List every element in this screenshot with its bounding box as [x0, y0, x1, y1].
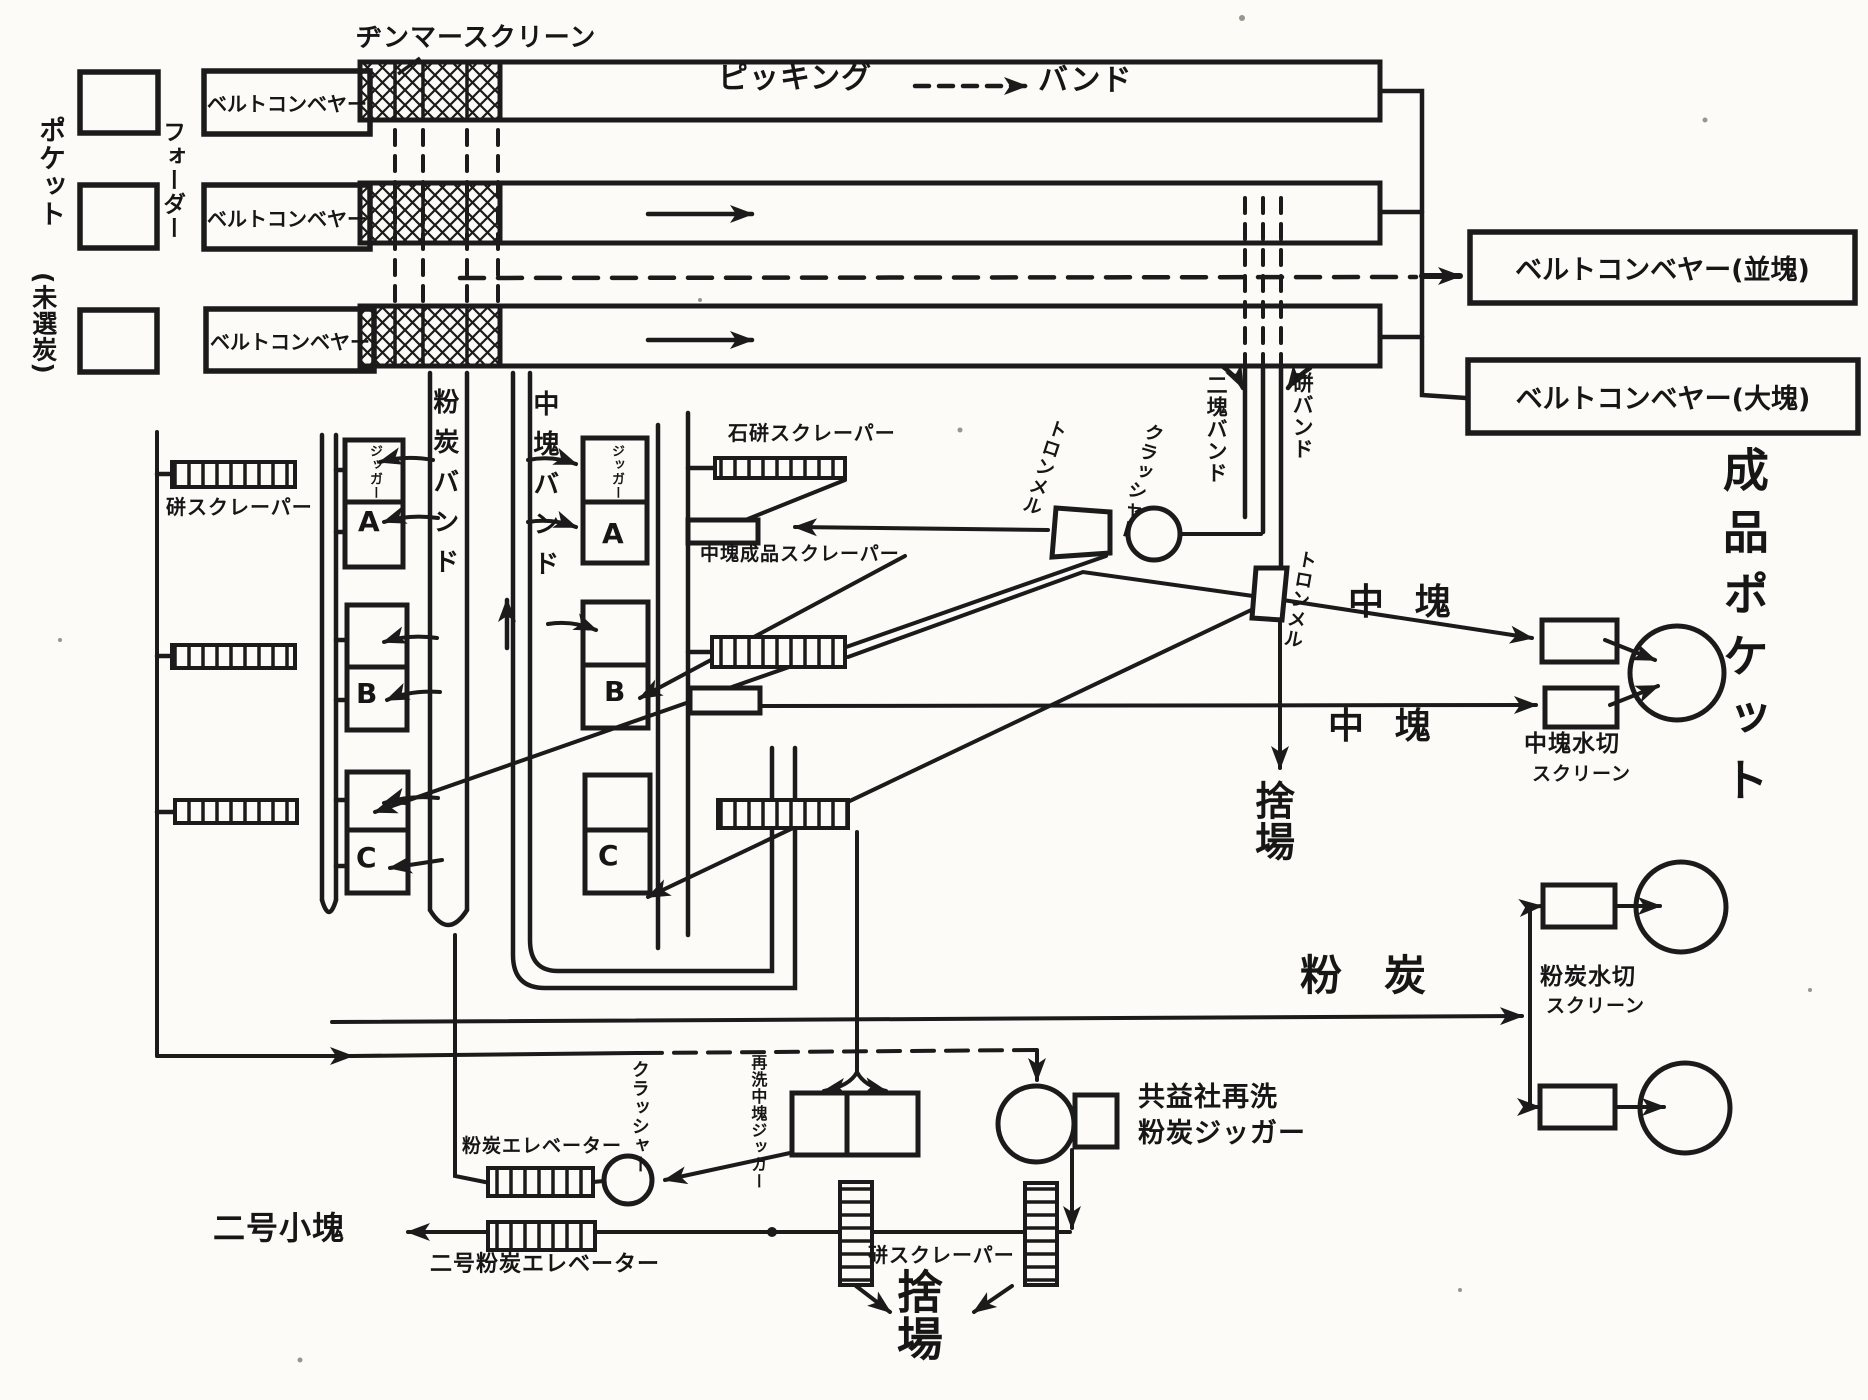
chukai-seihin-scraper-label: 中塊成品スクレーパー	[700, 544, 900, 566]
zuri-scraper-ladder-1	[172, 462, 295, 487]
jigger-left-label: ジッガー	[366, 444, 381, 500]
chukai-lower-label: 中塊	[1328, 706, 1461, 747]
lower-band-outline	[360, 306, 1380, 366]
zuri-scraper-ladder-3	[175, 800, 297, 823]
jimmer-screen-1	[360, 62, 500, 120]
conveyor-ogai-label: ベルトコンベヤー(大塊)	[1468, 360, 1858, 433]
funtan-band-label: 粉炭バンド	[428, 388, 458, 653]
raw-pocket-3	[80, 310, 157, 372]
jigger-right-label: ジッガー	[608, 444, 623, 500]
band-label: バンド	[1038, 64, 1133, 99]
chukai-upper-label: 中塊	[1348, 582, 1481, 623]
kyoekisha-jig-circle	[998, 1086, 1074, 1162]
chukai-band-label: 中塊バンド	[528, 390, 558, 660]
jigger-right-c-box	[585, 775, 650, 893]
rewash-jig-box	[792, 1093, 918, 1155]
jigger-left-a: A	[358, 506, 381, 538]
saisen-chukai-jigger-label: 再洗中塊ジッガー	[748, 1054, 766, 1189]
belt-conveyor-label-3: ベルトコンベヤー	[206, 309, 374, 371]
mid-band-outline	[360, 183, 1380, 243]
ishizuri-scraper-label: 石硑スクレーパー	[728, 422, 896, 445]
pocket-sub-label: (未選炭)	[28, 272, 57, 432]
dump-scraper-ladder-left	[840, 1182, 872, 1285]
chukai-seihin-scraper-ladder	[712, 637, 845, 667]
suteba-mid-label: 捨場	[1248, 780, 1294, 920]
chukai-mizukiri-label: 中塊水切	[1524, 731, 1620, 757]
collect-box-upper	[688, 520, 758, 543]
kyoekisha-label-2: 粉炭ジッガー	[1138, 1118, 1306, 1149]
seihin-pocket-label: 成品ポケット	[1716, 446, 1769, 956]
jimmer-screen-2	[360, 183, 500, 243]
jimmer-screen-3	[360, 306, 500, 366]
jigger-feed-arrows	[380, 458, 596, 803]
chukai-screen-box-2	[1545, 688, 1617, 727]
pocket-label: ポケット	[34, 116, 65, 286]
crusher-2-label: クラッシャー	[628, 1060, 649, 1170]
jigger-right-b: B	[604, 676, 626, 708]
nigo-kokai-label: 二号小塊	[213, 1210, 345, 1247]
chukai-mizukiri-screen-label: スクリーン	[1532, 764, 1631, 786]
center-scraper-ladder-3	[718, 800, 848, 828]
funtan-screen-box-2	[1540, 1086, 1615, 1128]
product-section	[1540, 620, 1730, 1153]
product-pocket-circle-1	[1630, 626, 1724, 720]
jigger-columns	[345, 438, 650, 893]
trommel-2-shape	[1252, 568, 1287, 620]
raw-pocket-2	[80, 185, 157, 248]
funtan-mizukiri-screen-label: スクリーン	[1546, 996, 1645, 1018]
suteba-bottom-label: 捨場	[890, 1268, 943, 1398]
zuri-scraper-left-label: 硑スクレーパー	[166, 496, 313, 519]
kyoekisha-label-1: 共益社再洗	[1138, 1082, 1278, 1113]
coal-washery-flow-diagram: ポケット (未選炭) フォーダー ベルトコンベヤー ベルトコンベヤー ベルトコン…	[0, 0, 1868, 1400]
zuri-band-label: 硑バンド	[1290, 372, 1314, 482]
kyoekisha-jig-box	[1075, 1095, 1117, 1147]
funtan-elevator-label: 粉炭エレベーター	[462, 1136, 622, 1158]
feeder-label: フォーダー	[158, 120, 184, 275]
funtan-label: 粉炭	[1300, 952, 1468, 1000]
belt-conveyor-label-1: ベルトコンベヤー	[204, 71, 370, 134]
conveyor-namikai-label: ベルトコンベヤー(並塊)	[1470, 232, 1855, 303]
zuri-scraper-bottom-label: 硑スクレーパー	[868, 1244, 1015, 1267]
jigger-right-c: C	[598, 840, 620, 872]
dump-scraper-ladder-right	[1025, 1183, 1057, 1285]
funtan-screen-box-1	[1543, 885, 1615, 927]
jigger-right-a: A	[602, 518, 625, 550]
ishizuri-scraper-ladder	[715, 458, 845, 478]
trommel-1-shape	[1052, 508, 1110, 557]
nigo-funtan-elevator-label: 二号粉炭エレベーター	[430, 1252, 660, 1277]
zuri-scraper-ladder-2	[172, 645, 295, 668]
belt-conveyor-label-2: ベルトコンベヤー	[204, 185, 370, 249]
nikai-band-label: 二塊バンド	[1204, 374, 1228, 499]
funtan-elevator-ladder	[488, 1168, 593, 1196]
jigger-left-b: B	[356, 678, 378, 710]
jimmer-screen-label: ヂンマースクリーン	[356, 24, 596, 54]
raw-pocket-1	[80, 72, 158, 133]
nigo-funtan-elevator-ladder	[488, 1222, 595, 1250]
collect-box-lower	[690, 688, 760, 713]
top-bands	[360, 58, 1380, 366]
picking-label: ピッキング	[718, 62, 872, 97]
jigger-left-c: C	[356, 842, 378, 874]
funtan-mizukiri-label: 粉炭水切	[1540, 964, 1636, 990]
